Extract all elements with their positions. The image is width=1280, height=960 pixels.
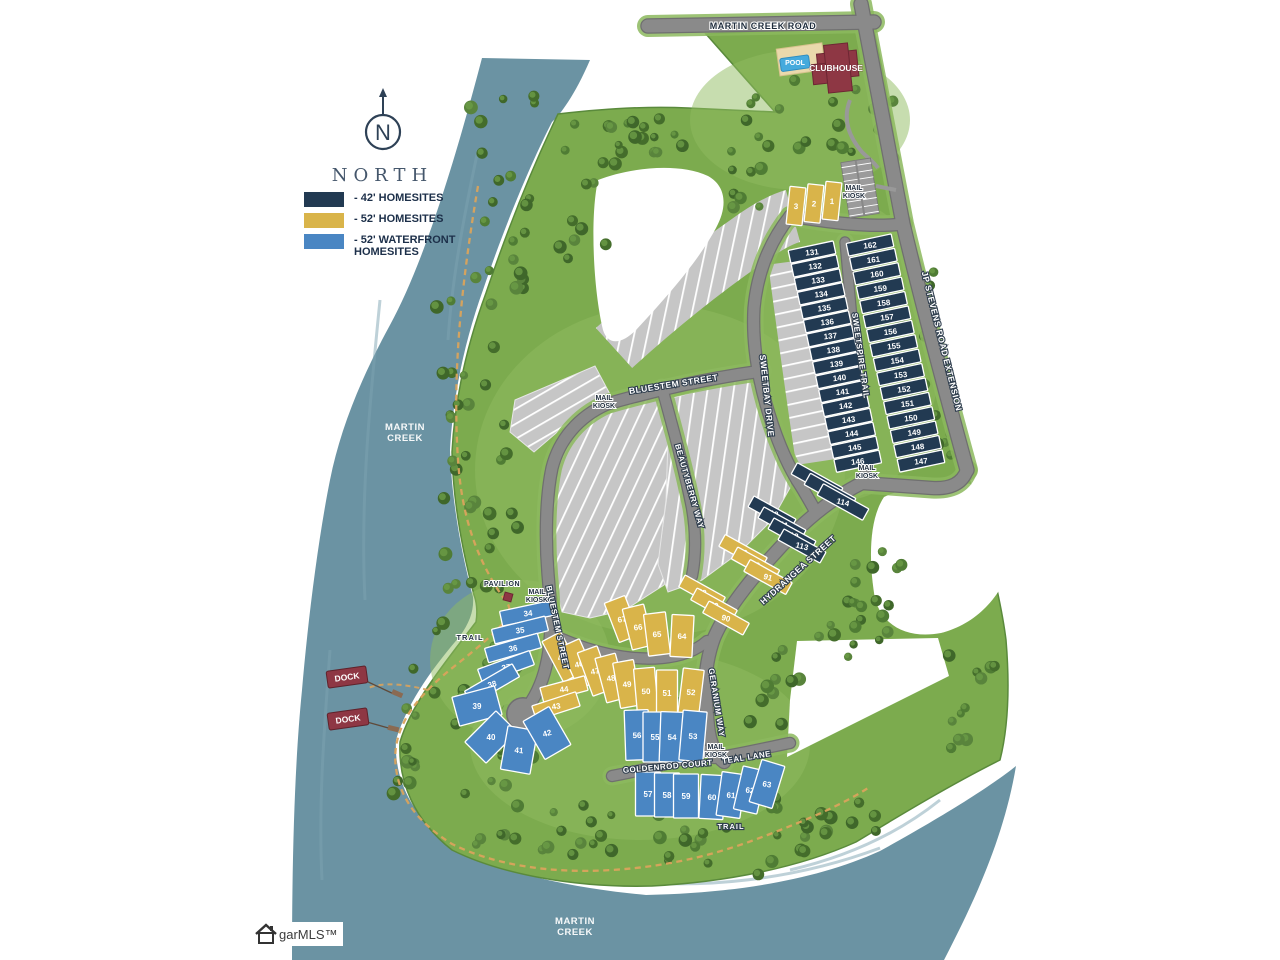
tree-highlight <box>465 502 472 509</box>
lot-149-number: 149 <box>907 427 922 437</box>
tree-highlight <box>430 688 437 695</box>
tree-highlight <box>543 842 550 849</box>
tree-highlight <box>868 562 875 569</box>
tree-highlight <box>651 134 656 139</box>
lot-34-number: 34 <box>523 608 533 618</box>
tree-highlight <box>883 627 889 633</box>
tree-highlight <box>884 601 890 607</box>
tree-highlight <box>827 622 832 627</box>
lot-139-number: 139 <box>829 359 844 369</box>
tree-highlight <box>774 832 779 837</box>
lot-50: 50 <box>634 667 659 715</box>
lot-61-number: 61 <box>726 791 736 801</box>
tree-highlight <box>451 719 457 725</box>
tree-highlight <box>947 744 953 750</box>
tree-highlight <box>833 120 840 127</box>
mail-kiosk-text: MAIL <box>858 465 876 472</box>
tree-highlight <box>596 831 603 838</box>
tree-highlight <box>515 268 523 276</box>
tree-highlight <box>665 852 671 858</box>
tree-highlight <box>699 829 705 835</box>
mail-kiosk-label: MAILKIOSK <box>705 744 727 759</box>
tree-highlight <box>463 399 470 406</box>
tree-highlight <box>973 668 978 673</box>
tree-highlight <box>582 180 588 186</box>
lot-157-number: 157 <box>880 312 895 322</box>
lot-65: 65 <box>644 612 671 656</box>
tree-highlight <box>601 240 607 246</box>
mail-kiosk-text: MAIL <box>528 589 546 596</box>
tree-highlight <box>681 826 686 831</box>
legend-item-label: - 42' HOMESITES <box>354 192 472 204</box>
lot-136-number: 136 <box>820 317 835 327</box>
tree-highlight <box>815 633 820 638</box>
tree-highlight <box>486 267 491 272</box>
legend-item-1: - 52' HOMESITES <box>304 213 475 228</box>
tree-highlight <box>655 114 661 120</box>
lot-39-number: 39 <box>473 702 482 711</box>
lot-140-number: 140 <box>832 373 847 383</box>
tree-highlight <box>944 651 951 658</box>
lot-158-number: 158 <box>877 298 892 308</box>
tree-highlight <box>756 203 761 208</box>
tree-highlight <box>510 834 517 841</box>
clubhouse-label: CLUBHOUSE <box>809 63 863 73</box>
tree-highlight <box>872 596 878 602</box>
tree-highlight <box>850 622 857 629</box>
legend-swatch-blue <box>304 234 344 249</box>
tree-highlight <box>879 548 884 553</box>
tree-highlight <box>851 560 857 566</box>
lot-57-number: 57 <box>644 790 653 799</box>
tree-highlight <box>509 237 514 242</box>
street-label-martin-creek-road: MARTIN CREEK ROAD <box>710 21 817 31</box>
lot-152-number: 152 <box>897 384 912 394</box>
tree-highlight <box>829 629 836 636</box>
lot-147-number: 147 <box>914 456 929 466</box>
tree-highlight <box>431 302 439 310</box>
lot-35-number: 35 <box>515 625 525 635</box>
tree-highlight <box>608 812 612 816</box>
house-icon <box>254 923 278 945</box>
tree-highlight <box>762 681 769 688</box>
tree-highlight <box>677 141 684 148</box>
tree-highlight <box>402 704 408 710</box>
tree-highlight <box>562 147 567 152</box>
lot-65-number: 65 <box>652 630 662 640</box>
tree-highlight <box>402 744 408 750</box>
lot-53: 53 <box>679 710 707 762</box>
legend-item-label: - 52' WATERFRONT HOMESITES <box>354 234 472 258</box>
tree-highlight <box>736 193 743 200</box>
tree-highlight <box>799 846 806 853</box>
tree-highlight <box>776 105 781 110</box>
tree-highlight <box>529 92 535 98</box>
tree-highlight <box>653 148 659 154</box>
tree-highlight <box>610 159 617 166</box>
tree-highlight <box>444 584 450 590</box>
lot-151-number: 151 <box>900 399 915 409</box>
tree-highlight <box>555 242 562 249</box>
tree-highlight <box>877 611 884 618</box>
tree-highlight <box>509 255 515 261</box>
tree-highlight <box>507 509 514 516</box>
tree-highlight <box>433 627 438 632</box>
lot-49-number: 49 <box>622 680 632 690</box>
tree-highlight <box>564 254 569 259</box>
trail-label: TRAIL <box>717 822 744 831</box>
tree-highlight <box>850 641 855 646</box>
tree-highlight <box>828 139 835 146</box>
tree-highlight <box>753 94 758 99</box>
tree-highlight <box>467 578 473 584</box>
tree-highlight <box>476 834 482 840</box>
lot-135-number: 135 <box>817 303 832 313</box>
north-label: NORTH <box>290 165 475 186</box>
tree-highlight <box>607 122 613 128</box>
lot-134-number: 134 <box>814 289 829 299</box>
tree-highlight <box>506 172 512 178</box>
tree-highlight <box>447 413 453 419</box>
tree-highlight <box>438 368 445 375</box>
tree-highlight <box>576 223 583 230</box>
tree-highlight <box>958 710 962 714</box>
lot-131-number: 131 <box>805 247 820 257</box>
tree-highlight <box>521 200 528 207</box>
tree-highlight <box>481 380 487 386</box>
mls-watermark: garMLS™ <box>252 922 343 946</box>
lot-155-number: 155 <box>887 341 902 351</box>
lot-162-number: 162 <box>863 240 878 250</box>
tree-highlight <box>779 646 785 652</box>
tree-highlight <box>857 602 863 608</box>
site-plan-map: 3211311321331341351361371381391401411421… <box>0 0 1280 960</box>
north-compass-icon: N <box>352 86 414 158</box>
tree-highlight <box>680 835 687 842</box>
tree-highlight <box>486 544 492 550</box>
tree-highlight <box>475 116 482 123</box>
tree-highlight <box>756 163 763 170</box>
tree-highlight <box>599 158 605 164</box>
watermark-text: garMLS™ <box>279 927 338 942</box>
lot-137-number: 137 <box>823 331 838 341</box>
tree-highlight <box>747 100 752 105</box>
tree-highlight <box>802 137 808 143</box>
tree-highlight <box>497 831 502 836</box>
mail-kiosk-label: MAILKIOSK <box>526 589 548 604</box>
tree-highlight <box>654 832 662 840</box>
lot-58-number: 58 <box>663 791 672 800</box>
lot-153-number: 153 <box>894 370 909 380</box>
lot-132-number: 132 <box>808 261 823 271</box>
tree-highlight <box>771 675 777 681</box>
martin-creek-text: MARTIN <box>385 422 425 433</box>
tree-highlight <box>409 758 414 763</box>
tree-highlight <box>461 372 466 377</box>
tree-highlight <box>821 828 828 835</box>
tree-highlight <box>462 452 467 457</box>
martin-creek-text: MARTIN <box>555 916 595 927</box>
lot-40-number: 40 <box>487 733 496 742</box>
mail-kiosk-label: MAILKIOSK <box>593 395 615 410</box>
legend-swatch-navy <box>304 192 344 207</box>
lot-150-number: 150 <box>904 413 919 423</box>
tree-highlight <box>501 449 508 456</box>
tree-highlight <box>757 695 764 702</box>
tree-highlight <box>837 143 844 150</box>
martin-creek-label: MARTINCREEK <box>385 422 425 444</box>
tree-highlight <box>849 599 854 604</box>
tree-highlight <box>412 712 417 717</box>
mail-kiosk-text: MAIL <box>845 185 863 192</box>
tree-highlight <box>484 508 492 516</box>
tree-highlight <box>754 870 760 876</box>
tree-highlight <box>500 421 506 427</box>
tree-highlight <box>550 809 555 814</box>
legend-item-label: - 52' HOMESITES <box>354 213 472 225</box>
tree-highlight <box>568 216 574 222</box>
tree-highlight <box>388 788 396 796</box>
pavilion-structure <box>503 592 513 602</box>
mail-kiosk-text: KIOSK <box>526 597 548 604</box>
tree-highlight <box>488 529 494 535</box>
legend-items: - 42' HOMESITES- 52' HOMESITES- 52' WATE… <box>290 192 475 258</box>
tree-highlight <box>590 840 595 845</box>
mail-kiosk-text: KIOSK <box>705 752 727 759</box>
tree-highlight <box>742 116 748 122</box>
tree-highlight <box>489 342 496 349</box>
martin-creek-text: CREEK <box>557 927 593 938</box>
lot-59: 59 <box>674 774 699 818</box>
mail-kiosk-text: KIOSK <box>843 193 865 200</box>
tree-highlight <box>448 457 454 463</box>
lot-44-number: 44 <box>559 684 570 694</box>
tree-highlight <box>851 578 857 584</box>
lot-144-number: 144 <box>845 429 860 439</box>
tree-highlight <box>628 117 635 124</box>
lot-64-number: 64 <box>677 632 687 641</box>
tree-highlight <box>606 845 613 852</box>
tree-highlight <box>473 841 478 846</box>
lot-1: 1 <box>822 181 842 220</box>
tree-highlight <box>409 665 415 671</box>
tree-highlight <box>404 777 411 784</box>
legend: N NORTH - 42' HOMESITES- 52' HOMESITES- … <box>290 86 475 258</box>
tree-highlight <box>949 718 954 723</box>
tree-highlight <box>801 833 807 839</box>
lot-142-number: 142 <box>838 401 853 411</box>
tree-highlight <box>630 132 638 140</box>
svg-text:N: N <box>375 120 391 145</box>
martin-creek-text: CREEK <box>387 433 423 444</box>
tree-highlight <box>440 549 448 557</box>
tree-highlight <box>777 719 784 726</box>
lot-143-number: 143 <box>842 415 857 425</box>
tree-highlight <box>478 149 484 155</box>
tree-highlight <box>848 148 853 153</box>
lot-56-number: 56 <box>632 731 642 740</box>
tree-highlight <box>747 168 752 173</box>
tree-highlight <box>787 676 794 683</box>
tree-highlight <box>691 843 697 849</box>
lot-51: 51 <box>657 670 678 716</box>
tree-highlight <box>755 133 760 138</box>
lot-161-number: 161 <box>866 255 881 265</box>
map-canvas: 3211311321331341351361371381391401411421… <box>0 0 1280 960</box>
tree-highlight <box>845 653 850 658</box>
tree-highlight <box>570 235 576 241</box>
lot-160-number: 160 <box>870 269 885 279</box>
tree-highlight <box>557 827 563 833</box>
tree-highlight <box>728 148 733 153</box>
tree-highlight <box>439 493 446 500</box>
lot-3: 3 <box>786 186 806 225</box>
tree-highlight <box>511 282 519 290</box>
tree-highlight <box>729 202 736 209</box>
tree-highlight <box>616 142 620 146</box>
mail-kiosk-label: MAILKIOSK <box>856 465 878 480</box>
tree-highlight <box>794 143 801 150</box>
tree-highlight <box>579 801 585 807</box>
tree-highlight <box>447 297 452 302</box>
martin-creek-label: MARTINCREEK <box>555 916 595 938</box>
lot-53-number: 53 <box>688 732 698 741</box>
lot-159-number: 159 <box>873 283 888 293</box>
tree-highlight <box>704 860 709 865</box>
tree-highlight <box>870 811 877 818</box>
tree-highlight <box>568 850 574 856</box>
legend-item-2: - 52' WATERFRONT HOMESITES <box>304 234 475 258</box>
lot-50-number: 50 <box>641 687 651 696</box>
compass: N NORTH <box>290 86 475 186</box>
tree-highlight <box>587 817 593 823</box>
lot-145-number: 145 <box>848 443 863 453</box>
tree-highlight <box>452 580 457 585</box>
lot-154-number: 154 <box>890 355 905 365</box>
lot-41-number: 41 <box>514 746 524 756</box>
tree-highlight <box>847 818 854 825</box>
tree-highlight <box>576 838 582 844</box>
tree-highlight <box>438 618 445 625</box>
lot-59-number: 59 <box>682 792 691 801</box>
tree-highlight <box>487 299 493 305</box>
lot-54-number: 54 <box>667 733 677 742</box>
mail-kiosk-text: KIOSK <box>593 403 615 410</box>
lot-66-number: 66 <box>633 622 643 632</box>
tree-highlight <box>512 801 519 808</box>
tree-highlight <box>954 735 961 742</box>
mail-kiosk-label: MAILKIOSK <box>843 185 865 200</box>
tree-highlight <box>767 856 774 863</box>
tree-highlight <box>857 616 863 622</box>
tree-highlight <box>961 704 966 709</box>
tree-highlight <box>790 76 796 82</box>
tree-highlight <box>640 123 646 129</box>
tree-highlight <box>976 673 983 680</box>
lot-52-number: 52 <box>686 688 696 698</box>
mail-kiosk-text: MAIL <box>595 395 613 402</box>
tree-highlight <box>512 522 519 529</box>
tree-highlight <box>500 96 505 101</box>
lot-64: 64 <box>670 614 694 657</box>
pool-label: POOL <box>785 60 806 67</box>
tree-highlight <box>501 780 508 787</box>
tree-highlight <box>494 176 500 182</box>
legend-swatch-gold <box>304 213 344 228</box>
tree-highlight <box>829 98 834 103</box>
lot-51-number: 51 <box>663 689 672 698</box>
tree-highlight <box>745 716 752 723</box>
tree-highlight <box>855 799 861 805</box>
tree-highlight <box>671 131 675 135</box>
tree-highlight <box>521 229 526 234</box>
tree-highlight <box>571 120 576 125</box>
legend-item-0: - 42' HOMESITES <box>304 192 475 207</box>
trail-label: TRAIL <box>456 633 483 642</box>
tree-highlight <box>729 166 734 171</box>
lot-55-number: 55 <box>651 733 660 742</box>
tree-highlight <box>730 190 736 196</box>
lot-141-number: 141 <box>835 387 850 397</box>
lot-156-number: 156 <box>883 327 898 337</box>
lot-60-number: 60 <box>707 793 717 802</box>
lot-138-number: 138 <box>826 345 841 355</box>
tree-highlight <box>876 637 881 642</box>
tree-highlight <box>872 827 878 833</box>
tree-highlight <box>461 790 466 795</box>
lot-148-number: 148 <box>911 442 926 452</box>
tree-highlight <box>489 198 494 203</box>
tree-highlight <box>488 778 493 783</box>
tree-highlight <box>772 653 777 658</box>
tree-highlight <box>990 662 996 668</box>
lot-2: 2 <box>804 184 824 223</box>
mail-kiosk-text: KIOSK <box>856 473 878 480</box>
tree-highlight <box>481 217 487 223</box>
pavilion-label: PAVILION <box>484 581 520 588</box>
lot-36-number: 36 <box>508 643 519 653</box>
mail-kiosk-text: MAIL <box>707 744 725 751</box>
lot-133-number: 133 <box>811 275 826 285</box>
tree-highlight <box>763 141 770 148</box>
tree-highlight <box>897 560 904 567</box>
tree-highlight <box>471 273 477 279</box>
